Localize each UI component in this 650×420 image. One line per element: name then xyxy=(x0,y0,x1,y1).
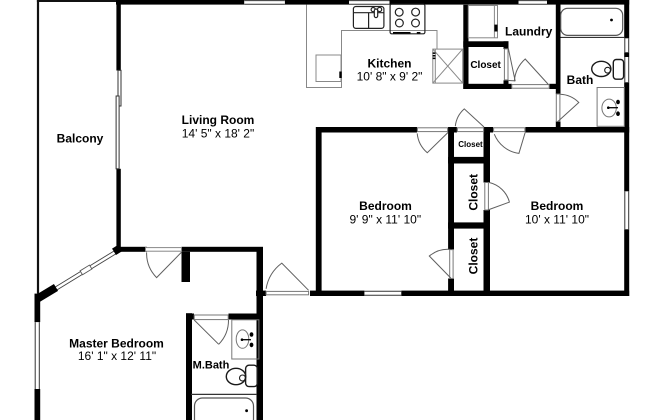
svg-text:Closet: Closet xyxy=(467,238,481,275)
svg-text:Bedroom: Bedroom xyxy=(531,199,584,213)
svg-text:M.Bath: M.Bath xyxy=(193,360,230,372)
svg-text:Kitchen: Kitchen xyxy=(367,57,411,71)
svg-text:Bath: Bath xyxy=(567,73,594,87)
svg-text:Balcony: Balcony xyxy=(57,132,104,146)
svg-text:10' x 11' 10": 10' x 11' 10" xyxy=(525,212,589,226)
svg-text:Closet: Closet xyxy=(458,140,483,149)
svg-text:10' 8" x 9' 2": 10' 8" x 9' 2" xyxy=(357,70,423,84)
svg-text:Closet: Closet xyxy=(467,174,481,211)
svg-text:Laundry: Laundry xyxy=(505,25,553,39)
svg-text:Bedroom: Bedroom xyxy=(359,199,412,213)
svg-text:Living Room: Living Room xyxy=(182,113,255,127)
svg-text:Closet: Closet xyxy=(470,60,501,71)
svg-text:9' 9" x 11' 10": 9' 9" x 11' 10" xyxy=(350,212,422,226)
svg-text:14' 5" x 18' 2": 14' 5" x 18' 2" xyxy=(182,127,254,141)
svg-text:16' 1" x 12' 11": 16' 1" x 12' 11" xyxy=(78,349,156,363)
